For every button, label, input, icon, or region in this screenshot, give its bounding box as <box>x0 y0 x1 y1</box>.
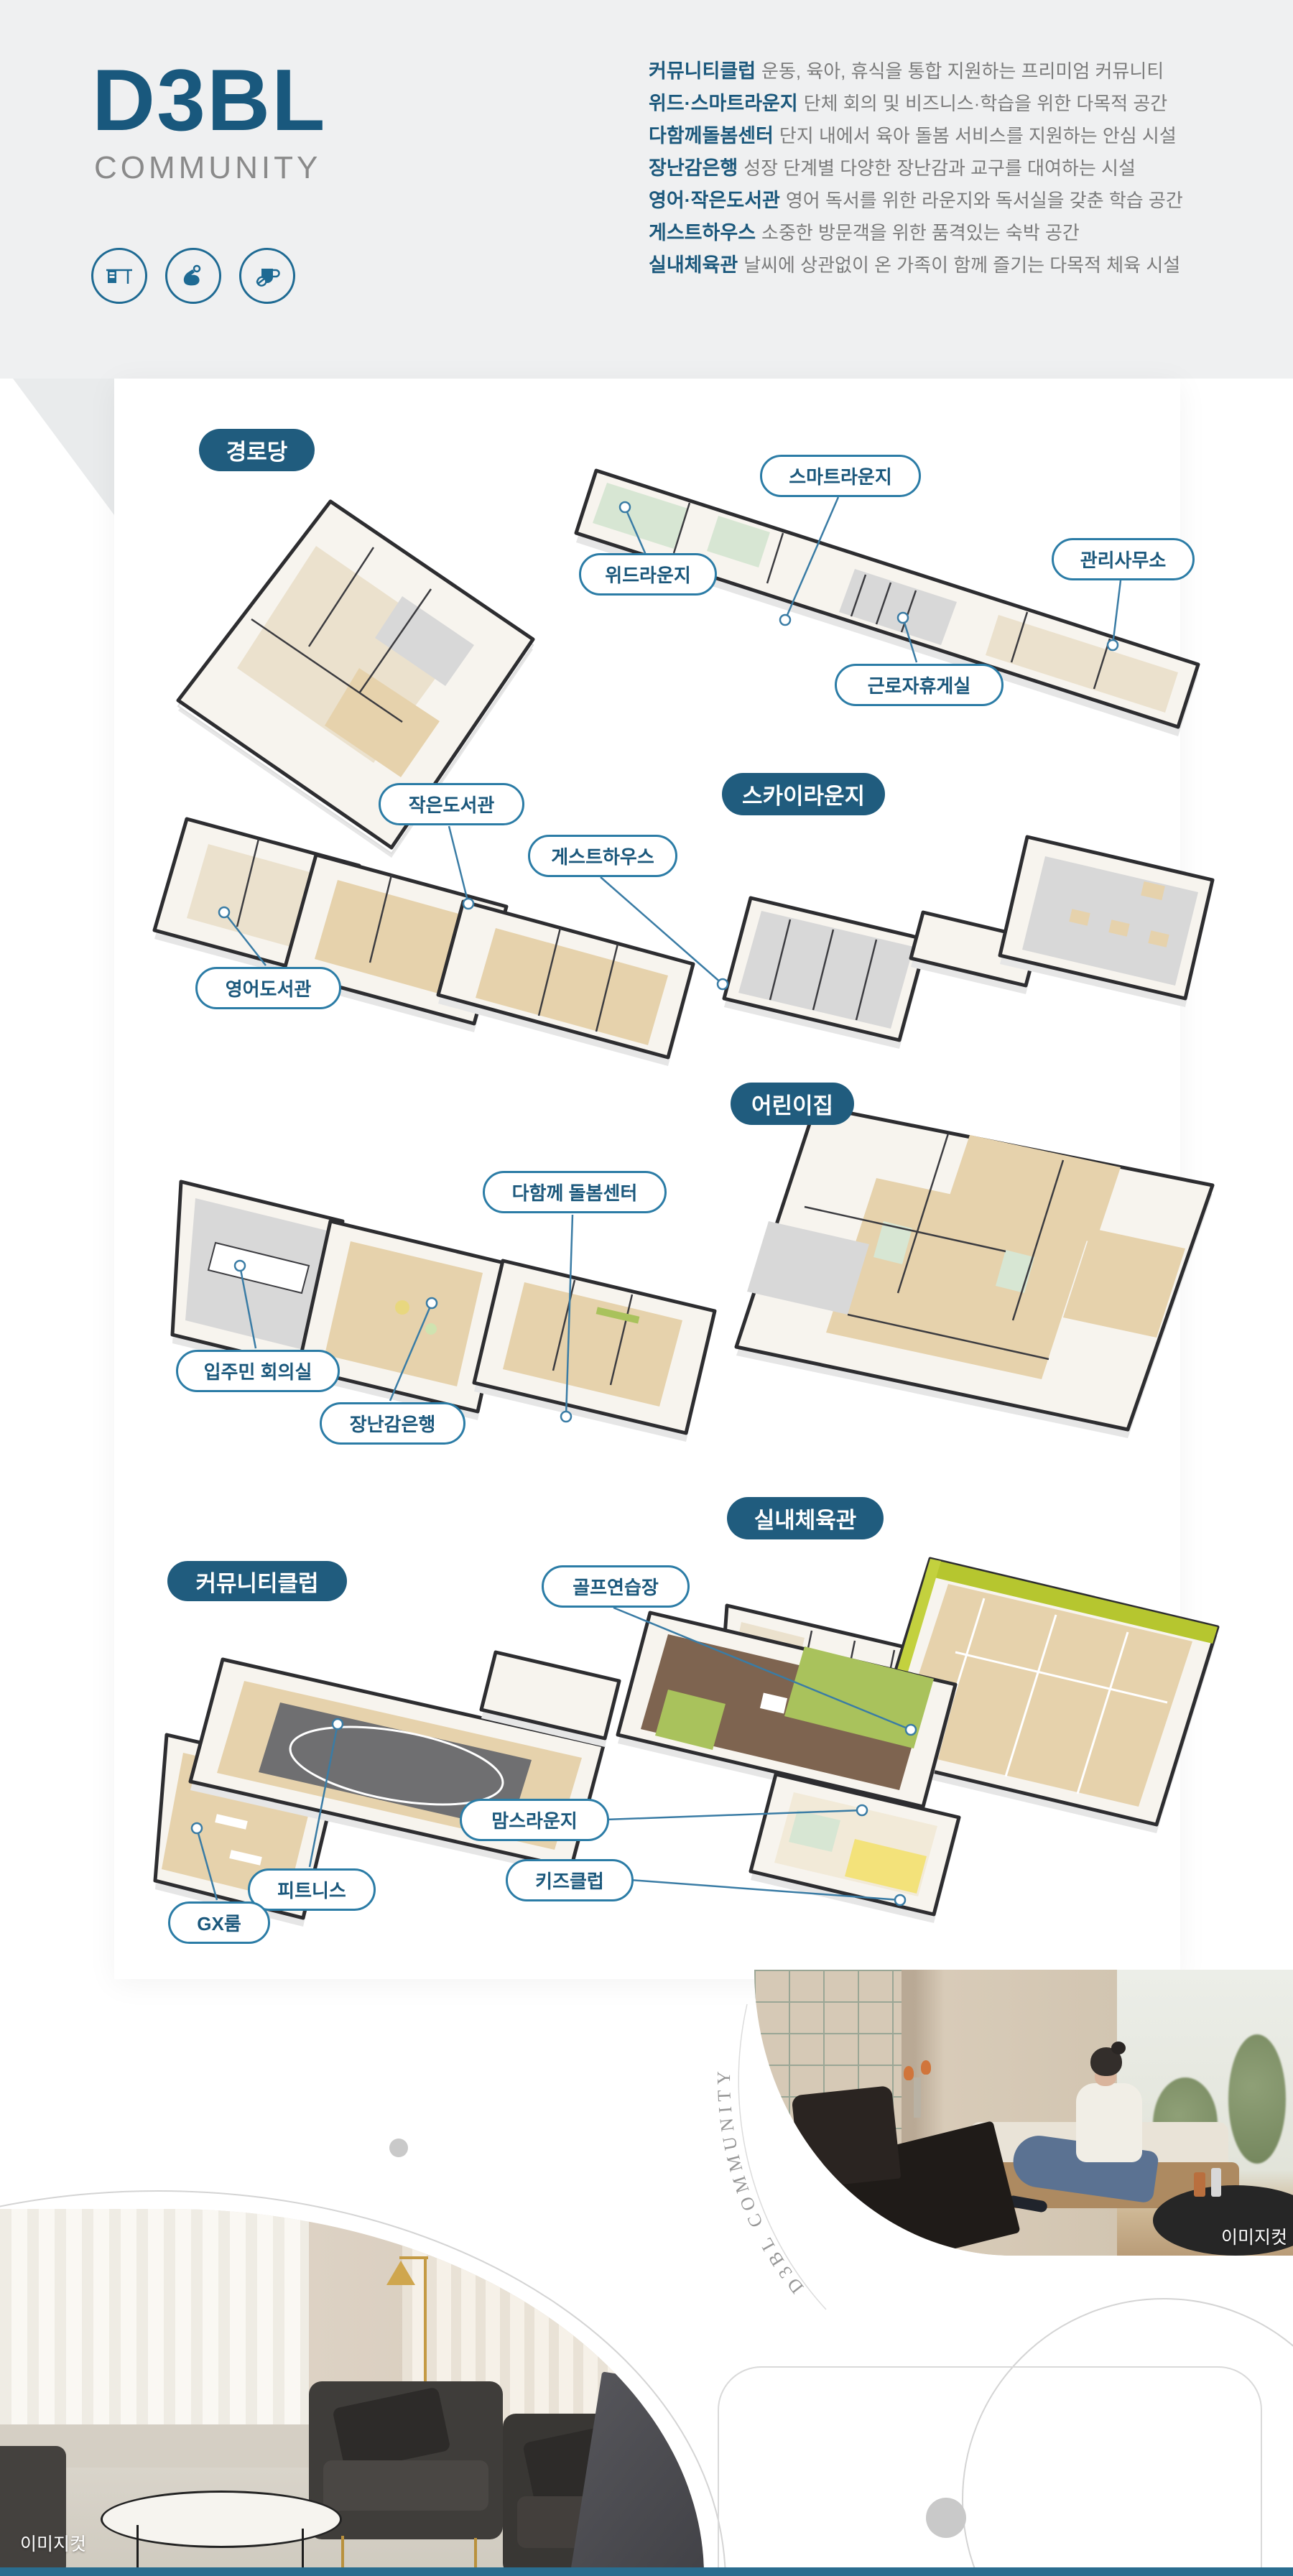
callout-pill-worker-rest-room: 근로자휴게실 <box>835 664 1004 706</box>
callout-pill-moms-lounge: 맘스라운지 <box>460 1799 609 1841</box>
feature-term: 다함께돌봄센터 <box>649 125 774 147</box>
section-pill-community-club: 커뮤니티클럽 <box>167 1561 347 1601</box>
armchair-partial <box>0 2446 66 2576</box>
logo-title: D3BL <box>92 56 327 144</box>
callout-pill-with-lounge: 위드라운지 <box>579 553 717 596</box>
feature-term: 실내체육관 <box>649 254 738 276</box>
feature-term: 게스트하우스 <box>649 222 756 244</box>
feature-item: 커뮤니티클럽운동, 육아, 휴식을 통합 지원하는 프리미엄 커뮤니티 <box>649 62 1216 81</box>
plant <box>1228 2034 1286 2164</box>
section-pill-senior-center: 경로당 <box>199 429 315 471</box>
callout-pill-gx-room: GX룸 <box>168 1901 270 1944</box>
tulip-flower <box>904 2066 914 2080</box>
feature-item: 실내체육관날씨에 상관없이 온 가족이 함께 즐기는 다목적 체육 시설 <box>649 256 1216 275</box>
chair-leg <box>341 2536 344 2572</box>
feature-item: 장난감은행성장 단계별 다양한 장난감과 교구를 대여하는 시설 <box>649 159 1216 178</box>
foreground-chair <box>792 2085 902 2189</box>
feature-desc: 영어 독서를 위한 라운지와 독서실을 갖춘 학습 공간 <box>786 190 1183 211</box>
photo-caption-right: 이미지컷 <box>1221 2223 1287 2249</box>
photo-caption-left: 이미지컷 <box>20 2530 86 2556</box>
logo-subtitle: COMMUNITY <box>94 152 321 184</box>
feature-term: 커뮤니티클럽 <box>649 60 756 82</box>
woman-hair-bun <box>1111 2042 1126 2054</box>
feature-term: 위드·스마트라운지 <box>649 93 798 114</box>
feature-list: 커뮤니티클럽운동, 육아, 휴식을 통합 지원하는 프리미엄 커뮤니티 위드·스… <box>649 62 1216 288</box>
seat-cushion <box>323 2460 488 2511</box>
feature-desc: 단체 회의 및 비즈니스·학습을 위한 다목적 공간 <box>804 93 1167 114</box>
feature-item: 게스트하우스소중한 방문객을 위한 품격있는 숙박 공간 <box>649 223 1216 243</box>
section-pill-gym: 실내체육관 <box>727 1497 884 1539</box>
callout-pill-fitness: 피트니스 <box>248 1868 376 1911</box>
callout-pill-english-library: 영어도서관 <box>195 967 341 1009</box>
feature-desc: 운동, 육아, 휴식을 통합 지원하는 프리미엄 커뮤니티 <box>761 60 1164 82</box>
callout-pill-guest-house: 게스트하우스 <box>528 835 677 877</box>
callout-pill-kids-club: 키즈클럽 <box>506 1859 634 1901</box>
floor-lamp-shade <box>386 2261 415 2285</box>
fitness-icon <box>165 248 221 304</box>
water-glass <box>1211 2168 1221 2197</box>
callout-pill-resident-meeting-room: 입주민 회의실 <box>176 1350 340 1392</box>
feature-item: 영어·작은도서관영어 독서를 위한 라운지와 독서실을 갖춘 학습 공간 <box>649 191 1216 210</box>
feature-desc: 성장 단계별 다양한 장난감과 교구를 대여하는 시설 <box>743 157 1136 179</box>
footer-bar <box>0 2567 1293 2576</box>
cafe-icon <box>239 248 295 304</box>
feature-term: 영어·작은도서관 <box>649 190 780 211</box>
desk-icon <box>91 248 147 304</box>
feature-item: 다함께돌봄센터단지 내에서 육아 돌봄 서비스를 지원하는 안심 시설 <box>649 126 1216 146</box>
tulip-flower <box>921 2060 931 2075</box>
feature-desc: 소중한 방문객을 위한 품격있는 숙박 공간 <box>761 222 1080 244</box>
gray-dot-large <box>926 2498 966 2538</box>
iced-drink <box>1194 2172 1205 2197</box>
feature-desc: 단지 내에서 육아 돌봄 서비스를 지원하는 안심 시설 <box>779 125 1177 147</box>
floor-lamp-arm <box>399 2256 428 2259</box>
lifestyle-photo-cafe <box>754 1970 1293 2256</box>
feature-term: 장난감은행 <box>649 157 738 179</box>
section-pill-sky-lounge: 스카이라운지 <box>722 773 885 815</box>
woman-top <box>1076 2083 1142 2162</box>
callout-pill-small-library: 작은도서관 <box>379 783 524 825</box>
callout-pill-golf-range: 골프연습장 <box>542 1565 690 1608</box>
gray-dot-small <box>389 2139 408 2157</box>
callout-pill-smart-lounge: 스마트라운지 <box>760 455 921 497</box>
callout-pill-management-office: 관리사무소 <box>1052 538 1195 580</box>
section-pill-daycare: 어린이집 <box>731 1083 854 1125</box>
feature-item: 위드·스마트라운지단체 회의 및 비즈니스·학습을 위한 다목적 공간 <box>649 94 1216 113</box>
callout-pill-care-center: 다함께 돌봄센터 <box>483 1171 667 1213</box>
lifestyle-photo-lounge <box>0 2209 704 2576</box>
community-brochure-page: D3BL COMMUNITY 커뮤니티클럽운동, 육아, 휴식을 통합 지원하는… <box>0 0 1293 2576</box>
feature-desc: 날씨에 상관없이 온 가족이 함께 즐기는 다목적 체육 시설 <box>743 254 1180 276</box>
vase <box>914 2077 921 2118</box>
callout-pill-toy-bank: 장난감은행 <box>320 1402 465 1445</box>
